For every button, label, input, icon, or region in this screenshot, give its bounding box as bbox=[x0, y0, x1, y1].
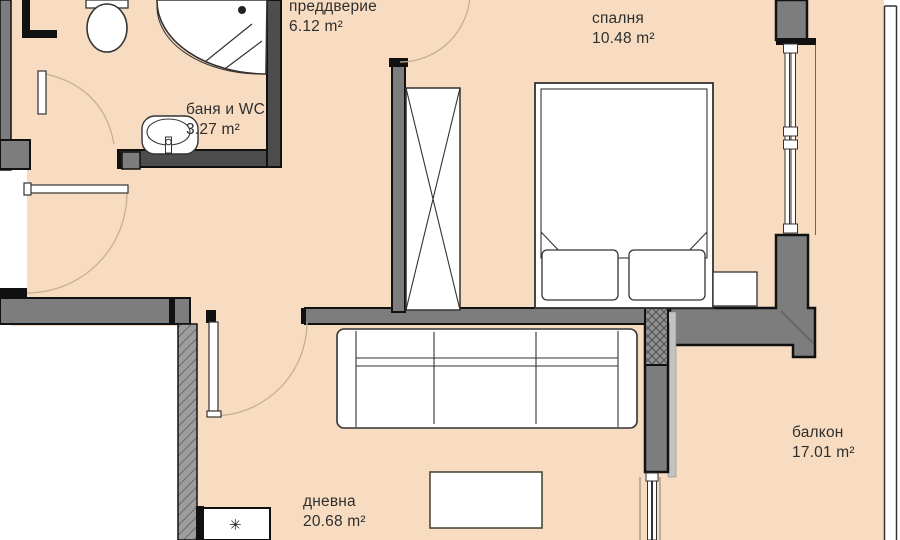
room-name: спалня bbox=[592, 9, 655, 29]
shower-head-icon bbox=[238, 6, 246, 14]
pillow bbox=[542, 250, 618, 300]
room-area: 3.27 m² bbox=[186, 120, 265, 140]
nightstand bbox=[713, 272, 757, 306]
room-name: преддверие bbox=[289, 0, 377, 17]
pillow bbox=[629, 250, 705, 300]
room-label-bathroom: баня и WC 3.27 m² bbox=[186, 100, 265, 140]
room-label-living-room: дневна 20.68 m² bbox=[303, 492, 366, 532]
room-area: 20.68 m² bbox=[303, 512, 366, 532]
balcony-parapet bbox=[885, 6, 897, 540]
room-area: 6.12 m² bbox=[289, 17, 377, 37]
wardrobe bbox=[406, 88, 460, 310]
room-name: дневна bbox=[303, 492, 366, 512]
room-area: 17.01 m² bbox=[792, 443, 855, 463]
floor-plan-drawing: ✳ bbox=[0, 0, 900, 540]
room-name: баня и WC bbox=[186, 100, 265, 120]
sofa bbox=[337, 329, 637, 428]
room-label-balcony: балкон 17.01 m² bbox=[792, 423, 855, 463]
toilet bbox=[86, 0, 128, 52]
room-label-bedroom: спалня 10.48 m² bbox=[592, 9, 655, 49]
appliance-symbol-icon: ✳ bbox=[229, 517, 242, 534]
room-name: балкон bbox=[792, 423, 855, 443]
room-label-hallway: преддверие 6.12 m² bbox=[289, 0, 377, 37]
dining-table bbox=[430, 472, 542, 528]
kitchen-appliance: ✳ bbox=[203, 508, 270, 540]
floor-plan: ✳ преддверие 6.12 m² спалня 10.48 m² бан… bbox=[0, 0, 900, 540]
bed bbox=[535, 83, 713, 308]
room-area: 10.48 m² bbox=[592, 29, 655, 49]
